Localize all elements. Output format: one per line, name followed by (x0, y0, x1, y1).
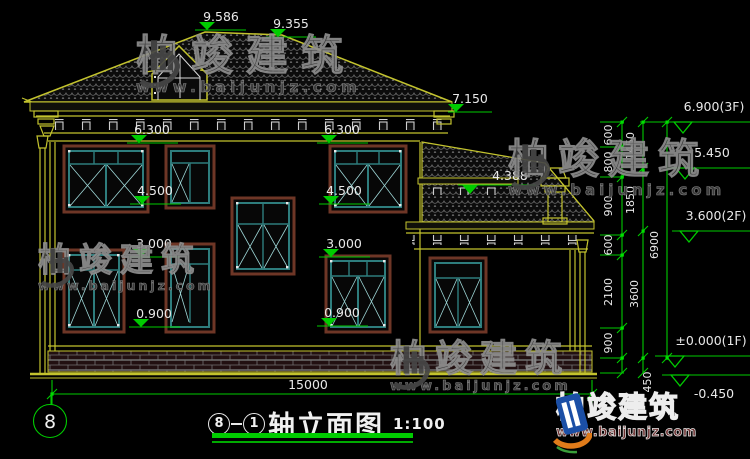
vdim-900a: 900 (602, 196, 615, 217)
dim-text-soffit-right: 6.300 (324, 122, 360, 137)
title-underline-thin (212, 441, 413, 443)
level-text-2f: 3.600(2F) (686, 208, 747, 223)
title-scale: 1:100 (393, 415, 446, 433)
vdim-6900: 6900 (648, 231, 661, 259)
eave-dentils (44, 119, 448, 130)
vdim-3600: 3600 (628, 280, 641, 308)
dim-text-top1f-left: 3.000 (136, 236, 172, 251)
window-2f-middle (166, 146, 214, 208)
vdim-900b: 900 (602, 333, 615, 354)
axis-bubble-number: 8 (44, 411, 56, 433)
main-roof (22, 32, 454, 141)
dim-text-sill1f-left: 0.900 (136, 306, 172, 321)
dim-main-eave: 7.150 (448, 91, 492, 112)
vdim-1450: 1450 (624, 132, 637, 160)
window-2f-right (330, 146, 406, 212)
eave-fascia (30, 102, 452, 111)
downspout-left (37, 136, 48, 374)
level-2f: 3.600(2F) (672, 208, 750, 242)
ground-and-plinth (30, 346, 597, 378)
level-1f: ±0.000(1F) (655, 333, 750, 367)
vdim-600b: 600 (602, 235, 615, 256)
dim-text-total-width: 15000 (288, 377, 328, 392)
dim-text-soffit-left: 6.300 (134, 122, 170, 137)
dim-top1f-right: 3.000 (319, 236, 370, 257)
axis-bubble: 8 (34, 394, 67, 438)
title-axis-to: 1 (243, 413, 265, 435)
dim-text-top1f-right: 3.000 (326, 236, 362, 251)
window-1f-left (64, 250, 124, 332)
brand-logo-icon (552, 390, 592, 456)
dim-text-annex-eave: 4.388 (492, 168, 528, 183)
window-1f-right (326, 256, 390, 332)
level-text-5450: 5.450 (694, 145, 730, 160)
dim-text-ridge-right: 9.355 (273, 16, 309, 31)
title-underline (212, 433, 413, 438)
title-dash (231, 423, 242, 425)
annex-lower-eave (406, 222, 594, 229)
dim-text-sill2f-right: 4.500 (326, 183, 362, 198)
vdim-1850: 1850 (624, 186, 637, 214)
vdim-600a: 600 (602, 125, 615, 146)
dim-text-sill2f-left: 4.500 (137, 183, 173, 198)
corner-capital-left (34, 111, 58, 136)
brick-plinth (48, 351, 592, 372)
horizontal-dimension: 15000 (47, 377, 597, 405)
level-text-1f: ±0.000(1F) (675, 333, 746, 348)
vertical-dim-chains: 600 800 900 600 2100 900 1450 1850 3600 … (600, 117, 672, 393)
vdim-2100: 2100 (602, 278, 615, 306)
window-stair (232, 198, 294, 274)
level-text-minus045: -0.450 (694, 386, 734, 401)
window-2f-left (64, 146, 148, 212)
level-5450: 5.450 (668, 145, 750, 179)
level-text-3f: 6.900(3F) (684, 99, 745, 114)
cad-elevation-screenshot: 9.586 9.355 7.150 6.300 6.300 4.500 (0, 0, 750, 459)
vdim-800: 800 (602, 152, 615, 173)
title-axis-from: 8 (208, 413, 230, 435)
window-1f-annex (430, 258, 486, 332)
brand-logo: 柏竣建筑 www.baijunjz.com (552, 390, 697, 440)
dim-ridge-right: 9.355 (266, 16, 316, 37)
level-3f: 6.900(3F) (640, 99, 750, 133)
dim-text-ridge-left: 9.586 (203, 9, 239, 24)
annex-roof (406, 142, 594, 249)
dim-text-sill1f-right: 0.900 (324, 305, 360, 320)
dim-text-main-eave: 7.150 (452, 91, 488, 106)
dim-ridge-left: 9.586 (195, 9, 246, 30)
